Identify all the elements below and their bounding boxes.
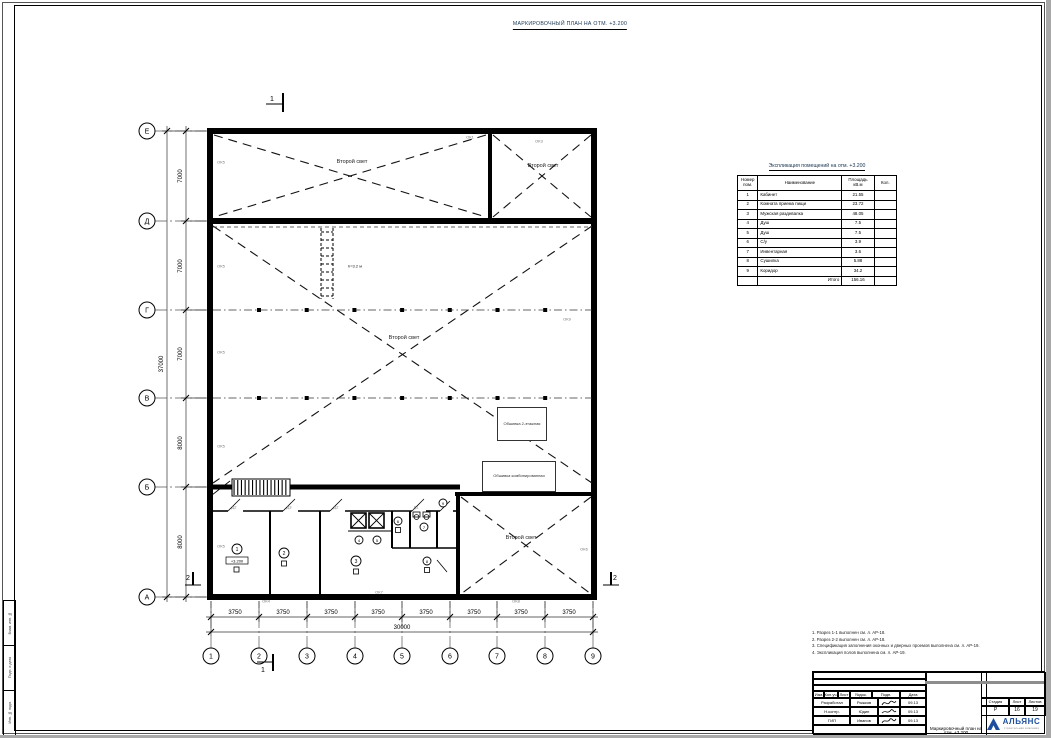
axis-leader-lines	[155, 131, 593, 648]
axis-col-label: 5	[400, 654, 404, 661]
axis-row-label: А	[145, 595, 150, 602]
left-dimensions: 7000 7000 7000 8000 8000 37000	[159, 126, 206, 602]
dim-label: 7000	[178, 169, 184, 183]
dim-label: 3750	[371, 610, 385, 616]
dim-label: 3750	[419, 610, 433, 616]
section-1-label: 1	[261, 667, 265, 674]
axis-col-label: 9	[591, 654, 595, 661]
door-leaves	[228, 499, 450, 572]
axis-col-label: 6	[448, 654, 452, 661]
elevation-mark: +3.200	[231, 558, 244, 563]
dim-label: 3750	[324, 610, 338, 616]
room-number: 3	[355, 559, 358, 565]
ladder-shaft	[321, 228, 333, 299]
bottom-dimensions: 3750 3750 3750 3750 3750 3750 3750 3750 …	[206, 601, 598, 636]
axis-row-label: Д	[145, 219, 150, 226]
callout-box: Обшивка комбинированная	[482, 461, 556, 492]
axis-row-label: Б	[145, 485, 150, 492]
section-1-label: 1	[270, 96, 274, 103]
axis-col-label: 1	[209, 654, 213, 661]
dim-label: 7000	[178, 259, 184, 273]
callout-box: Обшивка 2-этажная	[497, 407, 547, 441]
dim-label: 3750	[562, 610, 576, 616]
axis-row-label: Е	[145, 129, 150, 136]
dim-label: 8000	[178, 535, 184, 549]
room-number: 1	[236, 547, 239, 553]
axis-col-label: 2	[257, 654, 261, 661]
dashed-guides	[213, 227, 592, 398]
partitions	[213, 499, 458, 597]
axis-row-label: В	[145, 396, 150, 403]
walls	[207, 128, 597, 600]
section-marks: 1 1 2 2	[185, 93, 619, 674]
drawing-sheet: МАРКИРОВОЧНЫЙ ПЛАН НА ОТМ. +3.200	[0, 0, 1051, 738]
dim-label: 3750	[228, 610, 242, 616]
axis-row-label: Г	[145, 308, 149, 315]
dim-label: 7000	[178, 347, 184, 361]
dim-label: 8000	[178, 436, 184, 450]
shower-stalls	[351, 512, 430, 528]
axis-col-label: 4	[353, 654, 357, 661]
dim-total-label: 30000	[394, 625, 411, 631]
axis-col-label: 3	[305, 654, 309, 661]
column-markers	[257, 131, 548, 597]
dim-label: 3750	[467, 610, 481, 616]
axis-col-label: 7	[495, 654, 499, 661]
section-2-label: 2	[186, 575, 190, 582]
dim-label: 3750	[514, 610, 528, 616]
dim-total-label: 37000	[159, 355, 165, 372]
room-number: 2	[283, 551, 286, 557]
floor-plan-canvas: 1 +3.200 2 3 4 5 6 7 8 9	[0, 0, 1051, 738]
section-2-label: 2	[613, 575, 617, 582]
axis-col-label: 8	[543, 654, 547, 661]
dim-label: 3750	[276, 610, 290, 616]
